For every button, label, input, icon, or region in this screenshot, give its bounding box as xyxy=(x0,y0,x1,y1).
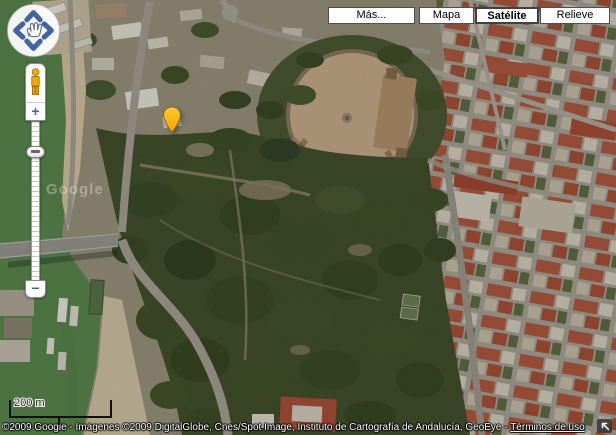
zoom-slider-handle[interactable] xyxy=(26,146,45,158)
slider-grip xyxy=(31,150,40,153)
terms-of-use-link[interactable]: Términos de uso xyxy=(510,422,584,433)
maptype-button-relieve[interactable]: Relieve xyxy=(540,7,610,24)
pegman-icon xyxy=(29,68,42,98)
street-view-pegman[interactable] xyxy=(26,64,45,103)
maptype-button-satelite[interactable]: Satélite xyxy=(475,7,539,24)
streetview-zoom-widget: + xyxy=(25,63,46,121)
pan-control[interactable] xyxy=(7,4,60,57)
google-maps-canvas: Google + − Más... Map xyxy=(0,0,616,435)
zoom-out-button[interactable]: − xyxy=(25,280,46,298)
more-button[interactable]: Más... xyxy=(328,7,415,24)
maptype-button-mapa[interactable]: Mapa xyxy=(419,7,474,24)
satellite-map[interactable] xyxy=(0,0,616,435)
map-marker[interactable] xyxy=(163,106,181,134)
scale-label: 200 m xyxy=(14,397,45,409)
map-corner-control[interactable] xyxy=(597,419,612,433)
zoom-slider-track[interactable] xyxy=(31,121,40,281)
scale-bar: 200 m xyxy=(0,395,130,430)
arrow-up-left-icon xyxy=(600,421,610,431)
google-watermark: Google xyxy=(46,181,104,198)
zoom-in-button[interactable]: + xyxy=(26,103,45,120)
